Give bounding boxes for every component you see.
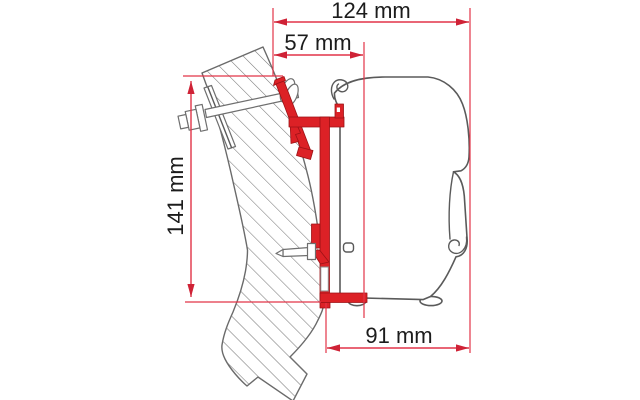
case-body	[334, 77, 469, 300]
arrowhead-bottom	[187, 284, 194, 297]
adapter-dimension-diagram: 124 mm 57 mm 141 mm 91 mm	[0, 0, 640, 400]
arrowhead-left	[327, 344, 340, 351]
bracket-bottom-nub	[320, 303, 330, 309]
bracket-bottom-foot	[320, 293, 367, 303]
dimension-case-depth: 91 mm	[327, 323, 469, 352]
diagram-canvas: 124 mm 57 mm 141 mm 91 mm	[0, 0, 640, 400]
arrowhead-left	[274, 18, 287, 25]
arrowhead-right	[350, 51, 363, 58]
screw-shaft	[283, 248, 309, 257]
dim-label-57: 57 mm	[284, 30, 351, 55]
bracket-case-hook-notch	[337, 108, 340, 113]
arrowhead-right	[456, 344, 469, 351]
bolt-head-group	[177, 104, 208, 135]
arrowhead-right	[456, 18, 469, 25]
dim-label-141: 141 mm	[163, 156, 188, 235]
bracket-top-arm	[289, 117, 344, 127]
lower-screw-washer	[308, 244, 316, 260]
arrowhead-top	[187, 81, 194, 94]
dim-label-124: 124 mm	[331, 0, 410, 23]
dimension-total-depth: 124 mm	[274, 0, 469, 26]
awning-case-outline	[331, 77, 469, 306]
dim-label-91: 91 mm	[365, 323, 432, 348]
dimension-bracket-depth: 57 mm	[274, 30, 363, 59]
rail-channel-window	[321, 267, 329, 291]
